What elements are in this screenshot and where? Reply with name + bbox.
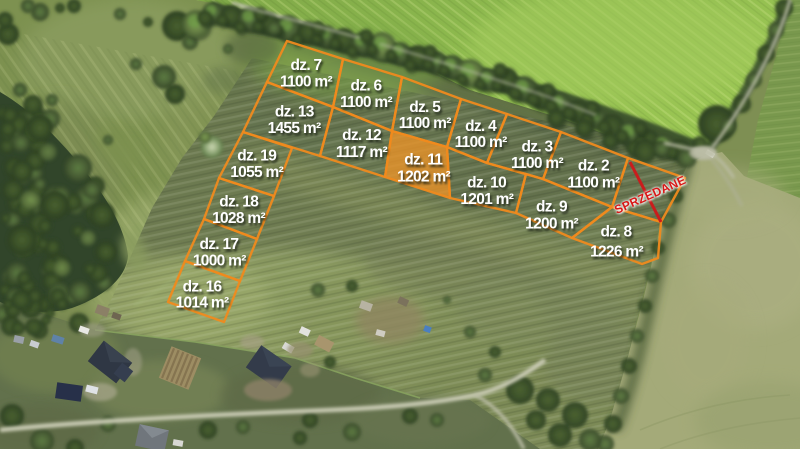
svg-text:1100 m²: 1100 m² (511, 155, 564, 172)
svg-text:dz. 16: dz. 16 (183, 278, 223, 295)
svg-text:dz. 12: dz. 12 (342, 127, 381, 144)
svg-text:dz. 5: dz. 5 (409, 99, 441, 116)
svg-text:dz. 9: dz. 9 (536, 198, 568, 215)
svg-text:dz. 10: dz. 10 (467, 174, 506, 191)
svg-text:1000 m²: 1000 m² (193, 252, 246, 269)
svg-text:1100 m²: 1100 m² (340, 94, 393, 111)
svg-text:dz. 17: dz. 17 (199, 236, 238, 253)
svg-text:dz. 6: dz. 6 (351, 78, 383, 95)
svg-text:1100 m²: 1100 m² (567, 175, 620, 192)
svg-text:dz. 4: dz. 4 (465, 118, 497, 135)
svg-text:dz. 8: dz. 8 (601, 223, 633, 240)
svg-text:dz. 3: dz. 3 (522, 139, 554, 156)
svg-text:1201 m²: 1201 m² (460, 191, 513, 208)
svg-text:1028 m²: 1028 m² (212, 210, 265, 227)
svg-text:1455 m²: 1455 m² (268, 120, 321, 137)
svg-text:dz. 13: dz. 13 (275, 103, 315, 120)
svg-text:dz. 11: dz. 11 (404, 152, 443, 169)
svg-text:dz. 18: dz. 18 (219, 194, 259, 211)
svg-text:1100 m²: 1100 m² (280, 74, 333, 91)
svg-text:1200 m²: 1200 m² (525, 215, 578, 232)
svg-text:1100 m²: 1100 m² (455, 134, 508, 151)
svg-text:1014 m²: 1014 m² (176, 295, 229, 312)
svg-text:1100 m²: 1100 m² (399, 115, 452, 132)
svg-text:dz. 7: dz. 7 (291, 57, 322, 74)
svg-text:1055 m²: 1055 m² (230, 164, 283, 181)
svg-text:1117 m²: 1117 m² (336, 144, 388, 161)
svg-text:1226 m²: 1226 m² (590, 243, 643, 260)
svg-text:1202 m²: 1202 m² (397, 169, 450, 186)
svg-text:dz. 19: dz. 19 (237, 148, 277, 165)
svg-text:dz. 2: dz. 2 (578, 157, 609, 174)
